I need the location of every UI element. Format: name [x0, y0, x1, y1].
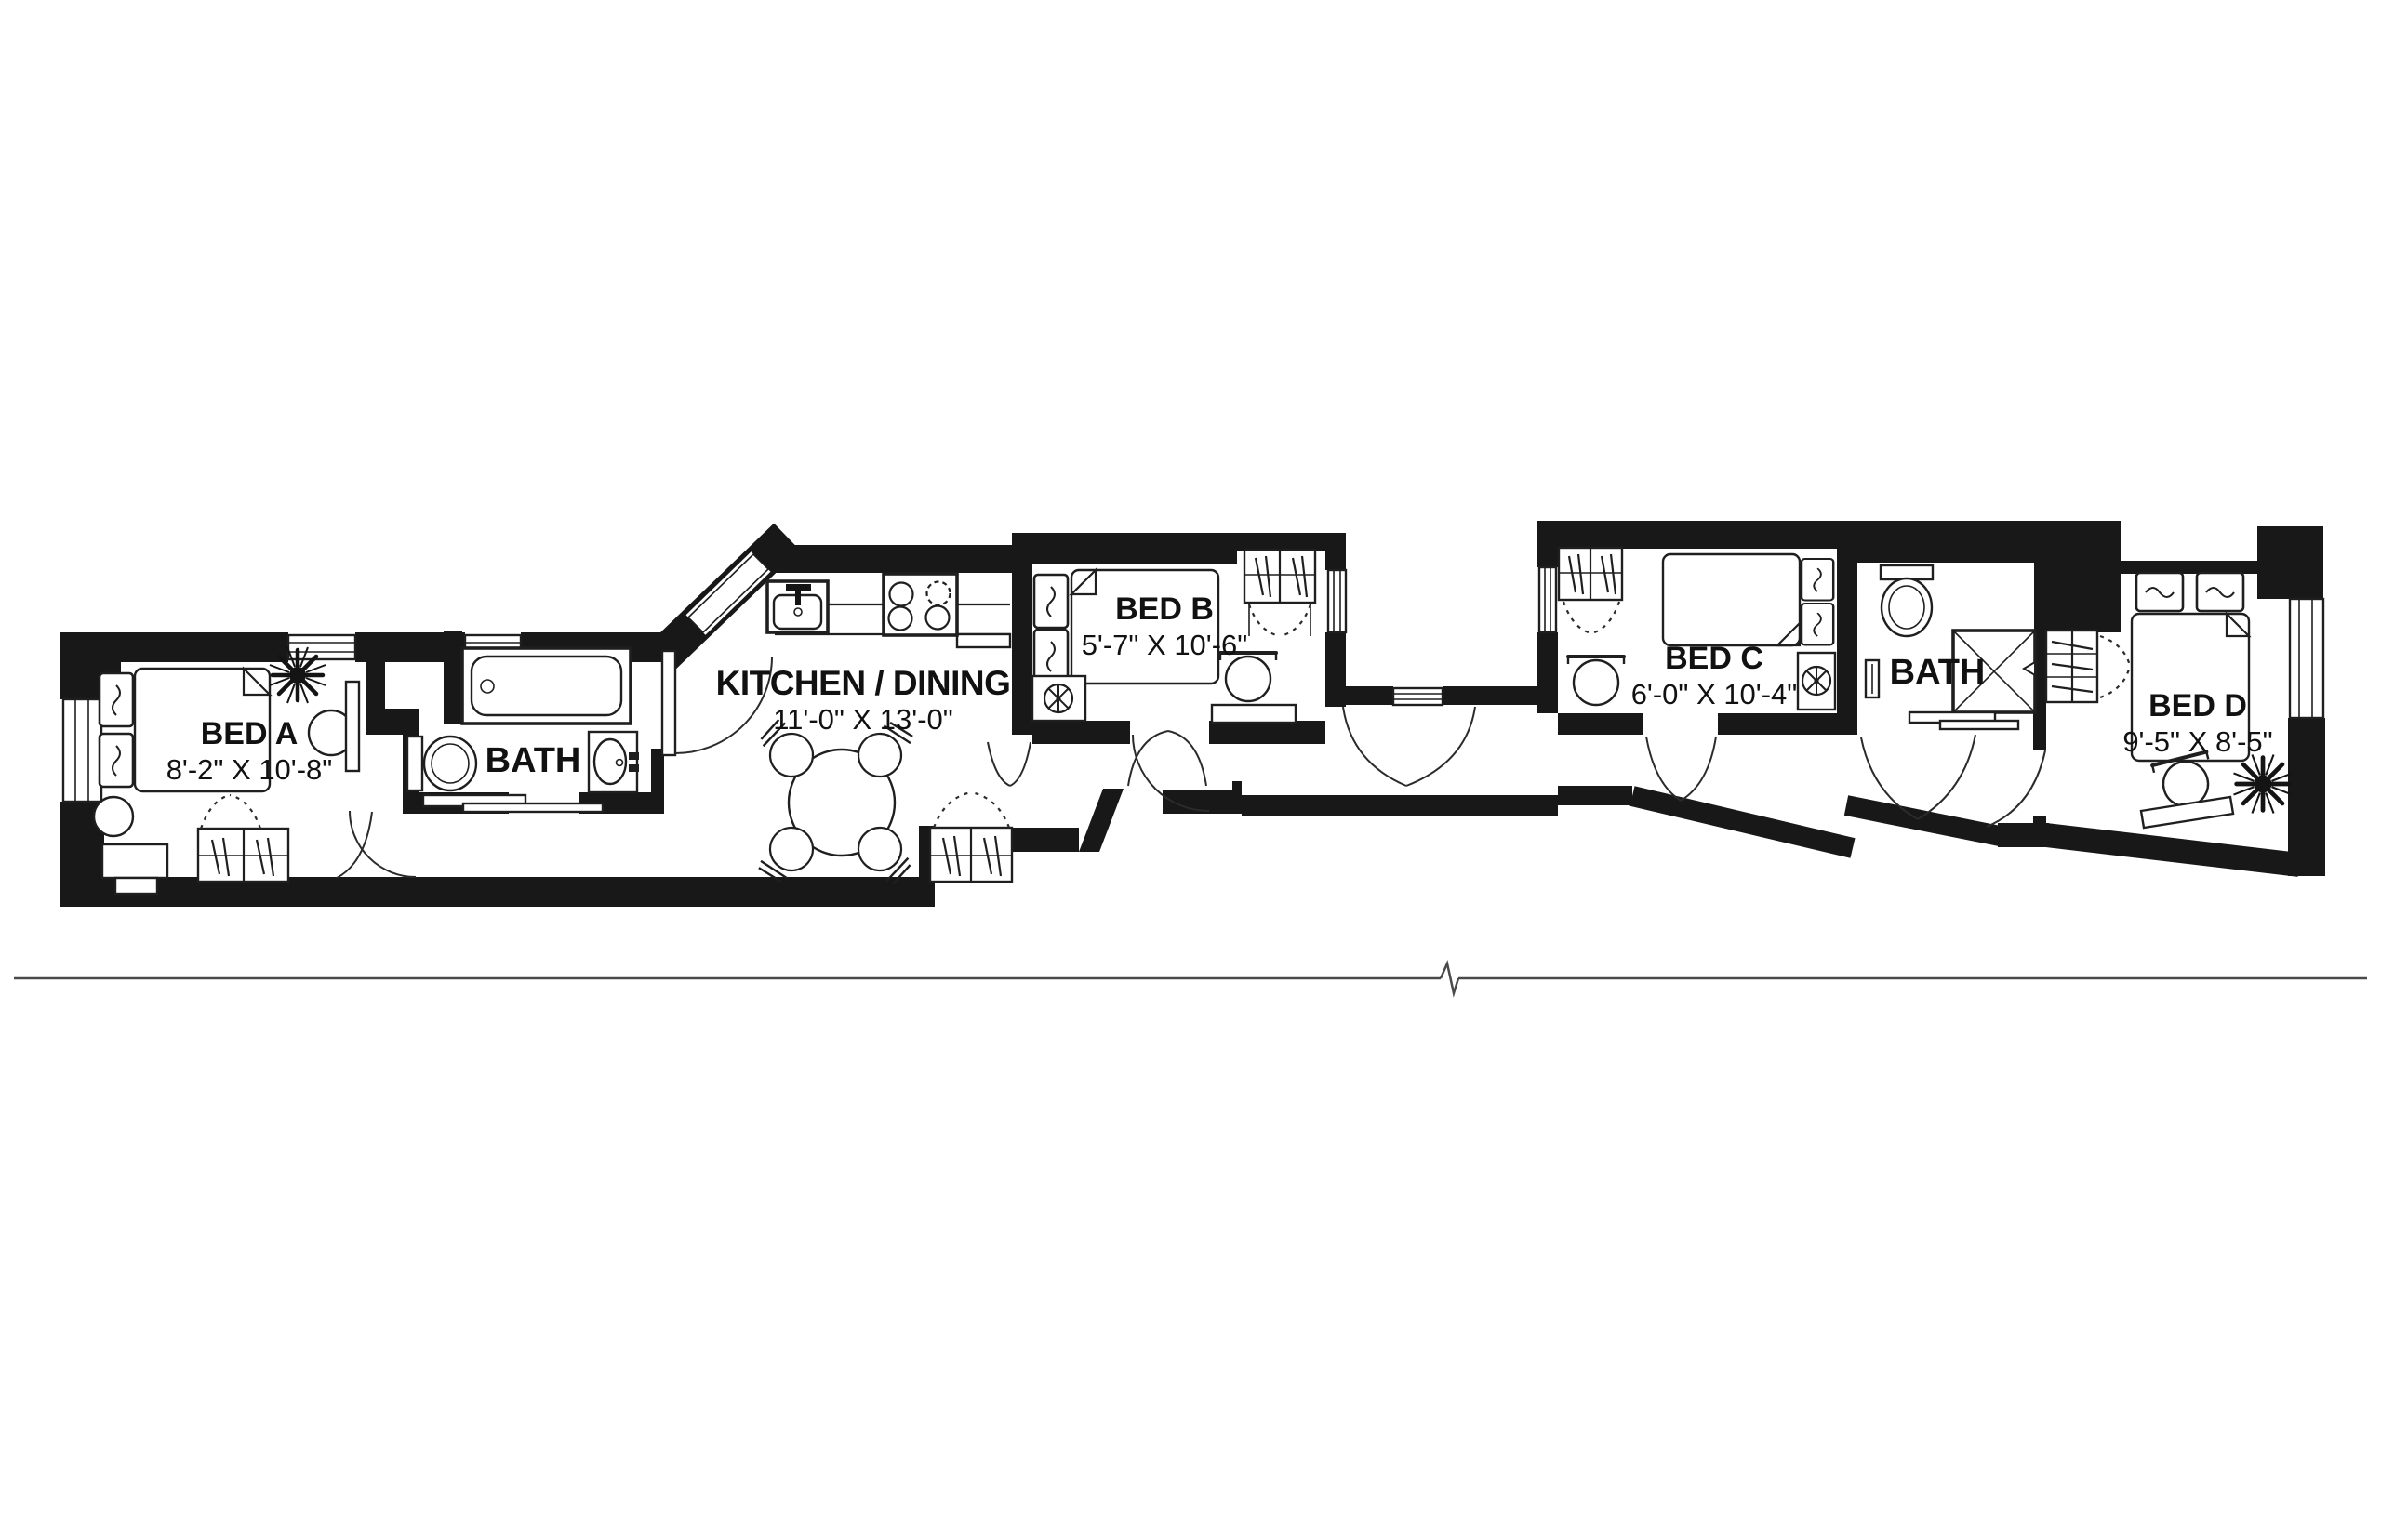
window-icon	[2290, 599, 2323, 718]
window-icon	[1393, 688, 1443, 705]
sink-icon	[589, 732, 639, 792]
room-bath-1: BATH	[407, 648, 639, 812]
floor-plan-page: BED A 8'-2" X 10'-8" BATH	[0, 0, 2381, 1540]
door-arc	[1918, 735, 1975, 819]
window-icon	[1539, 567, 1556, 632]
door-arc	[988, 742, 1010, 786]
room-label-bath-1: BATH	[486, 741, 581, 780]
bathtub-icon	[462, 648, 631, 724]
desk-icon	[346, 682, 359, 771]
pillow-icon	[1802, 559, 1833, 600]
closet-icon	[930, 792, 1012, 882]
plant-icon	[270, 647, 326, 703]
pillow-icon	[100, 734, 133, 787]
desk-chair-icon	[1568, 657, 1624, 705]
door-arc	[350, 811, 416, 877]
room-dims-bed-c: 6'-0" X 10'-4"	[1631, 678, 1798, 710]
kitchen-sink-icon	[767, 581, 828, 632]
towel-bar-icon	[1909, 712, 2018, 729]
ac-unit-icon	[1032, 676, 1085, 721]
room-label-bed-c: BED C	[1665, 641, 1763, 676]
plant-icon	[2234, 755, 2293, 814]
pillow-icon	[1802, 604, 1833, 644]
toilet-icon	[407, 737, 476, 790]
door-arc	[1987, 750, 2045, 827]
room-label-bed-a: BED A	[201, 716, 299, 751]
door-arc	[1168, 731, 1206, 786]
door-leaf	[662, 651, 675, 755]
window-icon	[63, 699, 101, 802]
stool-icon	[94, 797, 133, 836]
window-icon	[1328, 570, 1346, 632]
break-mark	[1441, 963, 1458, 993]
room-label-kitchen: KITCHEN / DINING	[716, 664, 1011, 702]
room-dims-bed-d: 9'-5" X 8'-5"	[2122, 725, 2272, 758]
stove-icon	[884, 574, 957, 635]
room-bed-a: BED A 8'-2" X 10'-8"	[94, 647, 359, 894]
ground-line	[14, 963, 2367, 993]
room-dims-bed-b: 5'-7" X 10'-6"	[1082, 629, 1248, 661]
toilet-icon	[1881, 565, 1933, 636]
door-arc	[1343, 707, 1406, 786]
door-arc	[1128, 731, 1168, 786]
door-arc	[1010, 742, 1031, 786]
closet-icon	[2046, 631, 2130, 702]
closet-icon	[1244, 550, 1315, 636]
pillow-icon	[2197, 573, 2243, 611]
room-bed-c: BED C 6'-0" X 10'-4"	[1559, 548, 1835, 710]
bed-icon	[1034, 570, 1218, 684]
room-label-bed-d: BED D	[2148, 688, 2247, 724]
closet-icon	[1559, 548, 1622, 633]
pillow-icon	[1034, 630, 1068, 683]
door-arc	[1406, 707, 1475, 786]
pillow-icon	[1034, 575, 1068, 628]
door-arc	[1681, 737, 1716, 801]
room-dims-bed-a: 8'-2" X 10'-8"	[166, 753, 333, 786]
toilet-paper-icon	[1866, 660, 1879, 697]
room-label-bed-b: BED B	[1115, 591, 1214, 627]
pillow-icon	[100, 673, 133, 726]
room-label-bath-2: BATH	[1890, 653, 1986, 692]
window-icon	[688, 554, 768, 632]
door-arc	[337, 812, 372, 878]
room-bed-b: BED B 5'-7" X 10'-6"	[1032, 550, 1315, 723]
ac-unit-icon	[1798, 653, 1835, 710]
room-dims-kitchen: 11'-0" X 13'-0"	[773, 703, 953, 736]
pillow-icon	[2136, 573, 2183, 611]
room-bath-2: BATH	[1866, 565, 2035, 729]
desk-icon	[1212, 705, 1296, 723]
floor-plan-svg: BED A 8'-2" X 10'-8" BATH	[0, 0, 2381, 1540]
room-kitchen: KITCHEN / DINING 11'-0" X 13'-0"	[716, 574, 1012, 890]
bed-icon	[1663, 554, 1833, 645]
closet-icon	[198, 795, 288, 882]
